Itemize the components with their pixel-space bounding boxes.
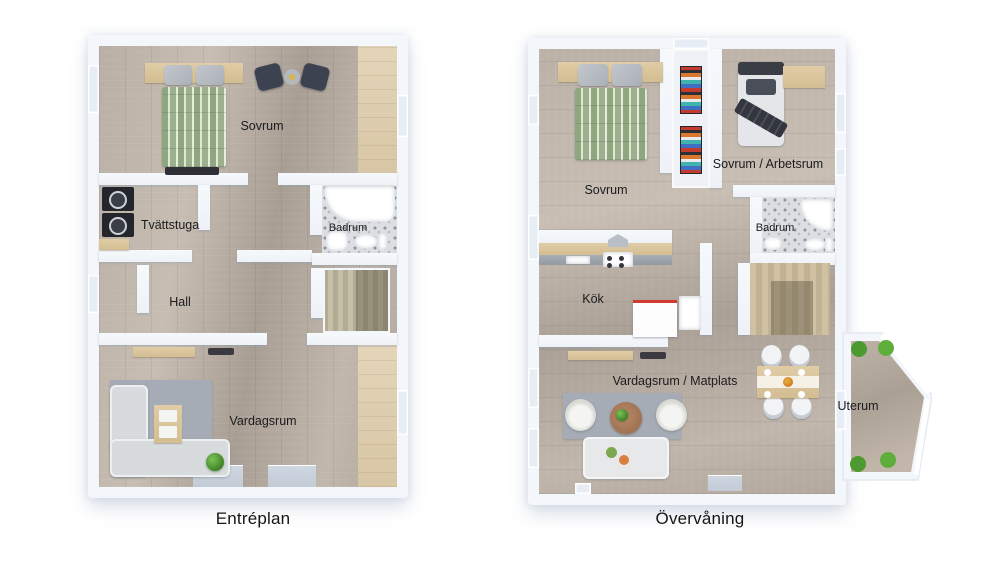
washing-machine: [102, 187, 134, 211]
plant: [206, 453, 224, 471]
dining-chair: [763, 396, 784, 419]
window-bay: [268, 465, 316, 487]
table-plant: [616, 409, 628, 421]
wall: [237, 250, 312, 262]
wall: [310, 185, 322, 235]
bed-headboard: [558, 62, 663, 82]
double-bed: [575, 88, 647, 160]
room-label-sovrum-arbetsrum: Sovrum / Arbetsrum: [713, 157, 823, 171]
wall: [99, 250, 192, 262]
room-label-vardagsrum: Vardagsrum: [229, 414, 296, 428]
door: [575, 483, 591, 494]
room-label-tvattstuga: Tvättstuga: [141, 218, 199, 232]
armchair: [656, 399, 687, 431]
dining-chair: [791, 396, 812, 419]
wardrobe-clothes: [680, 126, 702, 174]
stove-burners: [607, 256, 612, 261]
bed-end-bench: [165, 167, 219, 175]
wardrobe-clothes: [680, 66, 702, 114]
toilet-tank: [825, 237, 833, 252]
wall: [307, 333, 397, 345]
decor-bowl: [289, 74, 295, 80]
kitchen-sink: [566, 256, 590, 264]
room-label-sovrum: Sovrum: [240, 119, 283, 133]
toilet: [354, 234, 378, 249]
room-label-sovrum: Sovrum: [584, 183, 627, 197]
window: [528, 368, 539, 408]
kitchen-cart: [679, 296, 701, 330]
dryer: [102, 213, 134, 237]
desk: [783, 66, 825, 88]
floor-light-strip-bottom: [358, 345, 397, 487]
single-bed-headboard: [738, 62, 784, 75]
staircase-shadow: [771, 281, 813, 335]
window: [397, 95, 408, 137]
window: [88, 65, 99, 113]
room-label-vardagsrum-matplats: Vardagsrum / Matplats: [613, 374, 738, 388]
room-label-badrum: Badrum: [756, 222, 795, 234]
laundry-counter: [99, 239, 129, 250]
pillow: [746, 79, 776, 95]
wall: [198, 185, 210, 230]
floor-light-strip-top: [358, 46, 397, 174]
tv-unit: [640, 352, 666, 359]
wall: [700, 243, 712, 335]
plan-overvaning: Sovrum Sovrum / Arbetsrum Badrum Kök Var…: [528, 38, 932, 505]
tv-unit: [208, 348, 234, 355]
window: [835, 93, 846, 133]
sideboard: [568, 351, 633, 360]
kitchen-island: [633, 300, 677, 337]
pillow: [164, 65, 192, 85]
window: [397, 390, 408, 435]
door-mat: [708, 475, 742, 491]
armchair: [565, 399, 596, 431]
window: [835, 148, 846, 176]
fruit-bowl: [783, 377, 793, 387]
floor-plan-figure: Sovrum Tvättstuga Badrum Hall Vardagsrum: [0, 0, 991, 580]
window: [528, 95, 539, 125]
wall: [539, 230, 672, 243]
wall: [733, 185, 835, 197]
window: [528, 428, 539, 468]
bed-headboard: [145, 63, 243, 83]
room-label-uterum: Uterum: [838, 399, 879, 413]
pillow: [578, 64, 608, 86]
plan-caption-entreplan: Entréplan: [216, 509, 291, 529]
plates: [764, 369, 771, 376]
wall: [738, 263, 750, 335]
double-bed: [162, 87, 226, 167]
sideboard: [133, 347, 195, 357]
wall: [99, 333, 267, 345]
cushion-green: [606, 447, 617, 458]
dining-chair: [761, 345, 782, 368]
pillow: [196, 65, 224, 85]
wall: [137, 265, 149, 313]
pillow: [612, 64, 642, 86]
room-label-badrum: Badrum: [329, 222, 368, 234]
wall: [311, 268, 323, 318]
plan-caption-overvaning: Övervåning: [656, 509, 745, 529]
toilet-tank: [378, 233, 387, 250]
table-decor: [159, 410, 177, 422]
sink: [764, 237, 782, 250]
cushion-orange: [619, 455, 629, 465]
room-label-hall: Hall: [169, 295, 191, 309]
plan-entreplan: Sovrum Tvättstuga Badrum Hall Vardagsrum: [88, 35, 408, 498]
dining-chair: [789, 345, 810, 368]
toilet: [804, 238, 826, 251]
window: [528, 215, 539, 260]
entry-door: [88, 275, 99, 313]
sink: [326, 231, 348, 251]
wall: [278, 173, 397, 185]
window: [673, 38, 709, 49]
room-label-kok: Kök: [582, 292, 604, 306]
wall: [312, 253, 397, 265]
staircase-shadow: [356, 270, 388, 331]
